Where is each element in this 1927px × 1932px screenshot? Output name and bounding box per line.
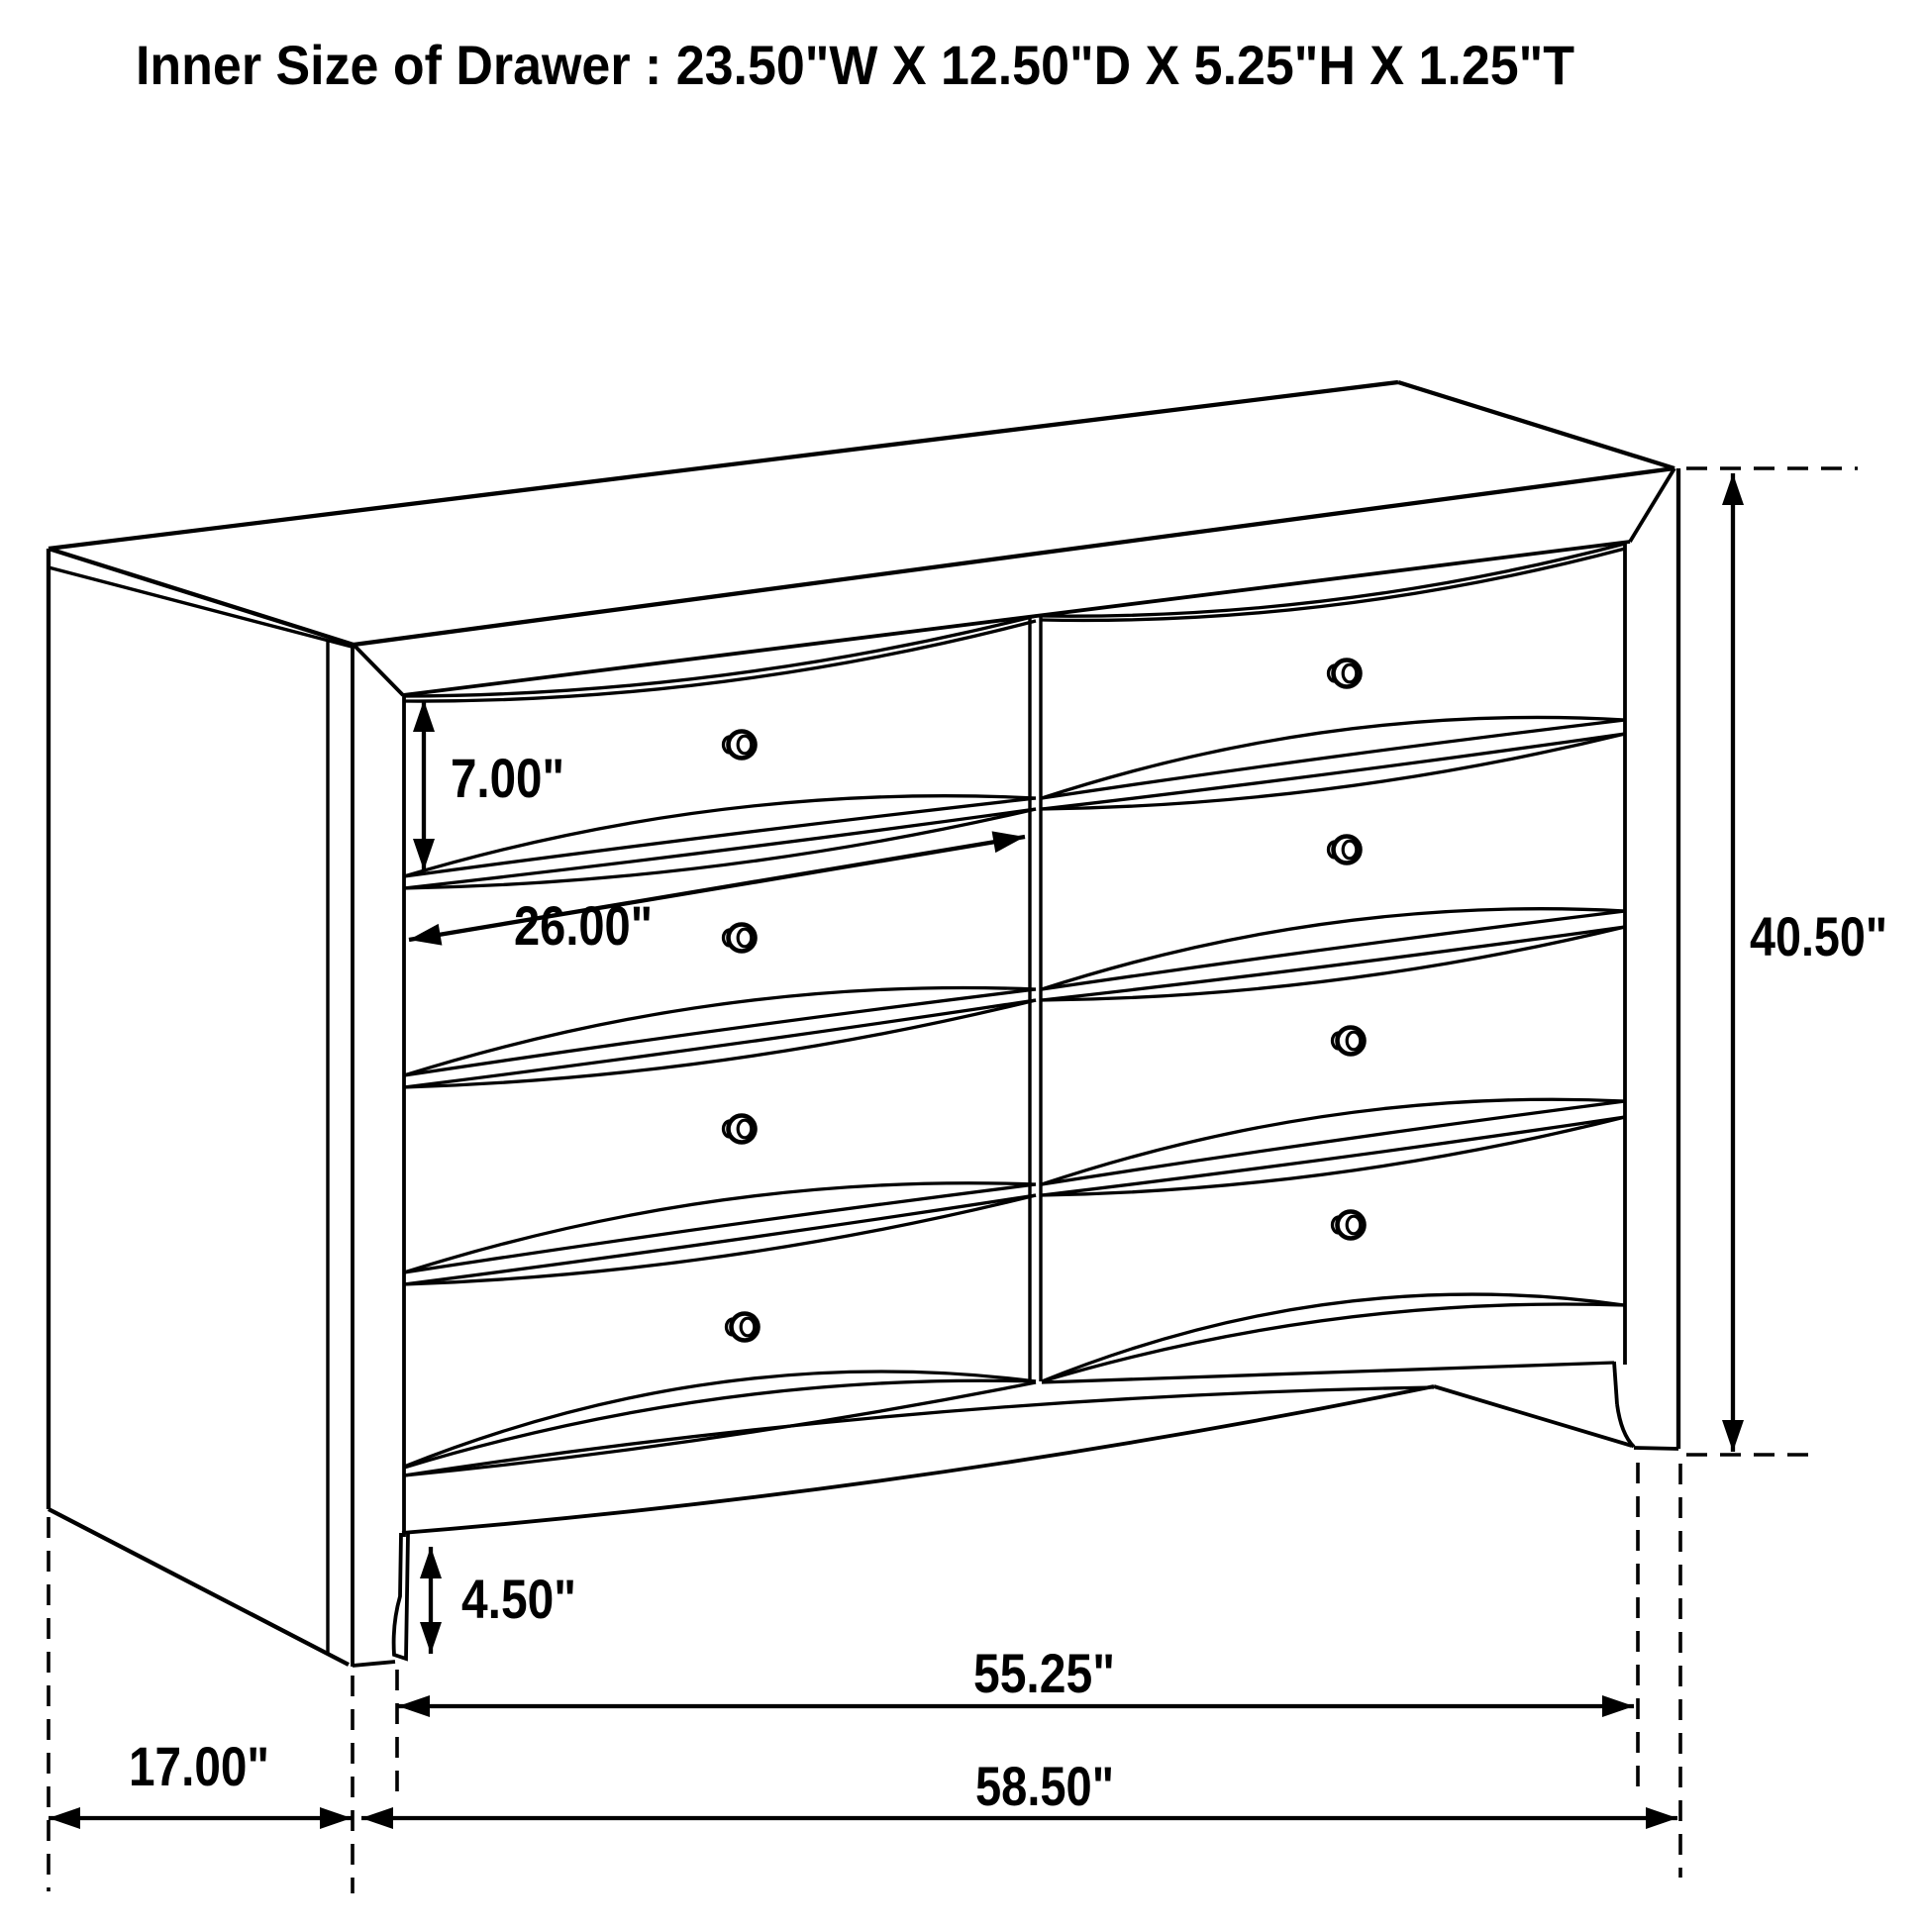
svg-text:40.50": 40.50" bbox=[1750, 905, 1887, 967]
svg-text:26.00": 26.00" bbox=[514, 894, 653, 957]
svg-text:7.00": 7.00" bbox=[451, 747, 564, 809]
svg-text:4.50": 4.50" bbox=[461, 1568, 576, 1630]
svg-text:55.25": 55.25" bbox=[973, 1642, 1115, 1704]
svg-text:Inner Size of Drawer : 23.50"W: Inner Size of Drawer : 23.50"W X 12.50"D… bbox=[136, 34, 1574, 96]
svg-text:17.00": 17.00" bbox=[129, 1735, 269, 1797]
svg-text:58.50": 58.50" bbox=[975, 1755, 1114, 1817]
